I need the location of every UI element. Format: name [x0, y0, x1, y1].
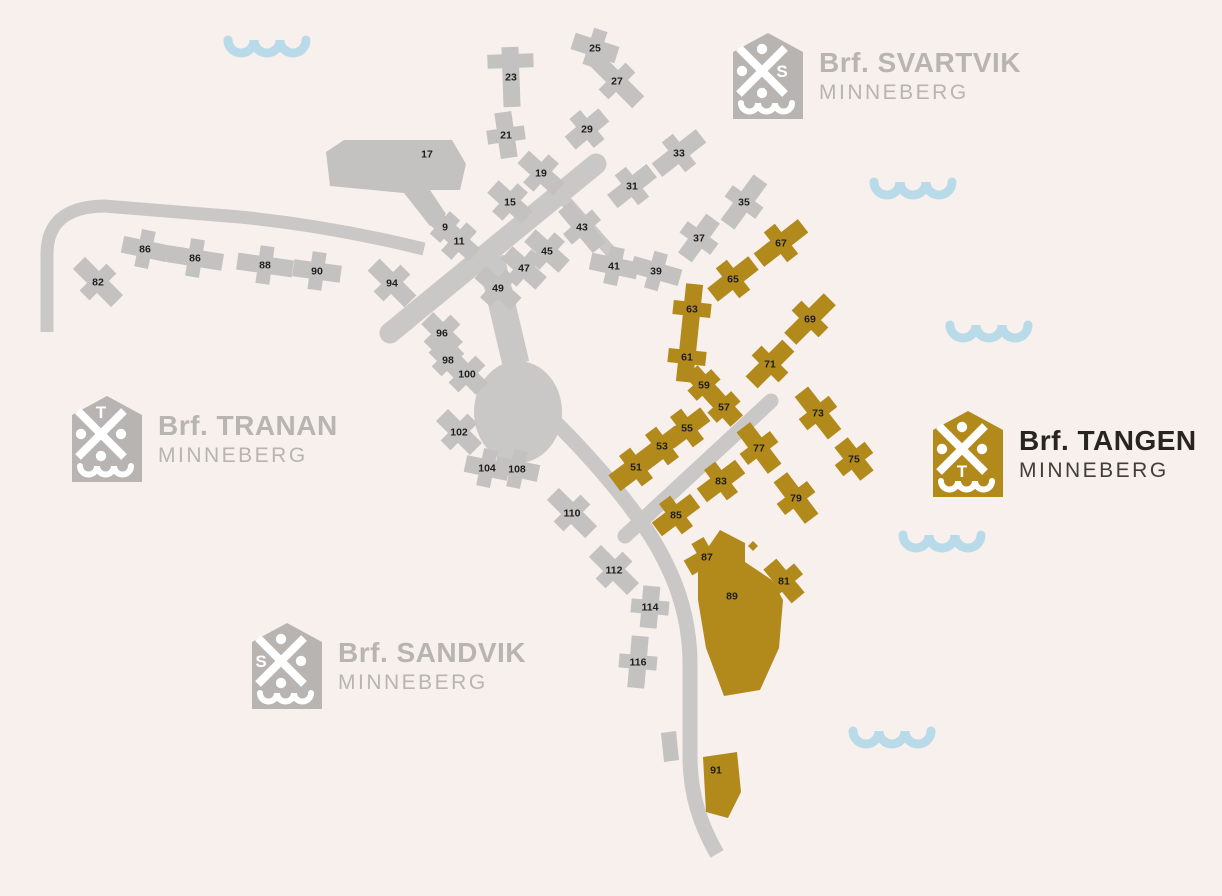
building-label-86: 86 — [139, 244, 151, 256]
building-label-47: 47 — [518, 263, 530, 275]
shield-dot — [757, 88, 767, 98]
shield-letter: T — [957, 462, 968, 481]
building-label-11: 11 — [453, 236, 464, 248]
building-label-77: 77 — [753, 443, 765, 455]
building-label-35: 35 — [738, 197, 750, 209]
building-label-27: 27 — [611, 76, 623, 88]
tranan-logo-text: Brf. TRANAN MINNEBERG — [158, 411, 338, 466]
water-wave-icon-3 — [950, 325, 1028, 338]
building-label-63: 63 — [686, 304, 698, 316]
water-wave-icon-1 — [228, 40, 306, 53]
svartvik-shield-icon: S — [733, 33, 803, 119]
building-label-104: 104 — [478, 463, 496, 475]
tranan-title: Brf. TRANAN — [158, 411, 338, 440]
building-label-33: 33 — [673, 148, 685, 160]
building-label-108: 108 — [508, 464, 526, 476]
sandvik-subtitle: MINNEBERG — [338, 671, 526, 694]
shield-dot — [977, 444, 987, 454]
building-label-17: 17 — [421, 149, 433, 161]
building-label-31: 31 — [626, 181, 638, 193]
brf-svartvik-logo[interactable]: S Brf. SVARTVIK MINNEBERG — [733, 33, 1021, 119]
building-label-19: 19 — [535, 168, 547, 180]
building-label-39: 39 — [650, 266, 662, 278]
brf-sandvik-logo[interactable]: S Brf. SANDVIK MINNEBERG — [252, 623, 526, 709]
building-label-9: 9 — [442, 222, 448, 234]
building-label-116: 116 — [630, 657, 647, 669]
building-label-87: 87 — [701, 552, 713, 564]
sandvik-shield-icon: S — [252, 623, 322, 709]
building-label-94: 94 — [386, 278, 398, 290]
building-label-25: 25 — [589, 43, 601, 55]
building-label-71: 71 — [764, 359, 776, 371]
tranan-subtitle: MINNEBERG — [158, 444, 338, 467]
shield-dot — [276, 678, 286, 688]
building-label-114: 114 — [642, 602, 659, 614]
shield-dot — [757, 44, 767, 54]
svartvik-title: Brf. SVARTVIK — [819, 48, 1021, 77]
shield-dot — [937, 444, 947, 454]
water-wave-icon-4 — [903, 535, 981, 548]
building-label-59: 59 — [698, 380, 710, 392]
building-label-81: 81 — [778, 576, 790, 588]
building-label-75: 75 — [848, 454, 860, 466]
shield-dot — [96, 451, 106, 461]
tangen-title: Brf. TANGEN — [1019, 426, 1197, 455]
building-91 — [703, 752, 741, 818]
building-annex — [661, 731, 679, 762]
building-label-37: 37 — [693, 233, 705, 245]
building-label-51: 51 — [630, 462, 642, 474]
building-label-41: 41 — [608, 261, 620, 273]
water-wave-icon-2 — [874, 182, 952, 195]
building-label-67: 67 — [775, 238, 787, 250]
building-label-91: 91 — [710, 765, 722, 777]
building-label-69: 69 — [804, 314, 816, 326]
shield-dot — [296, 656, 306, 666]
building-label-61: 61 — [681, 352, 693, 364]
shield-dot — [276, 634, 286, 644]
shield-dot — [737, 66, 747, 76]
svartvik-logo-text: Brf. SVARTVIK MINNEBERG — [819, 48, 1021, 103]
building-label-23: 23 — [505, 72, 517, 84]
building-annex — [748, 541, 758, 551]
water-wave-icon-5 — [853, 731, 931, 744]
svartvik-subtitle: MINNEBERG — [819, 81, 1021, 104]
building-label-55: 55 — [681, 423, 693, 435]
building-label-98: 98 — [442, 355, 454, 367]
tangen-subtitle: MINNEBERG — [1019, 459, 1197, 482]
brf-tangen-logo[interactable]: T Brf. TANGEN MINNEBERG — [933, 411, 1197, 497]
sandvik-logo-text: Brf. SANDVIK MINNEBERG — [338, 638, 526, 693]
building-label-89: 89 — [726, 591, 738, 603]
building-label-102: 102 — [450, 427, 468, 439]
building-label-100: 100 — [458, 369, 476, 381]
building-label-90: 90 — [311, 266, 323, 278]
building-label-110: 110 — [564, 508, 581, 520]
building-label-96: 96 — [436, 328, 448, 340]
shield-dot — [957, 422, 967, 432]
sandvik-title: Brf. SANDVIK — [338, 638, 526, 667]
building-label-57: 57 — [718, 402, 730, 414]
building-label-82: 82 — [92, 277, 104, 289]
road-culdesac-blob — [474, 361, 562, 463]
building-label-85: 85 — [670, 510, 682, 522]
building-label-15: 15 — [504, 197, 516, 209]
building-label-65: 65 — [727, 274, 739, 286]
building-label-29: 29 — [581, 124, 593, 136]
shield-letter: S — [255, 652, 266, 671]
tranan-shield-icon: T — [72, 396, 142, 482]
building-label-43: 43 — [576, 222, 588, 234]
tangen-logo-text: Brf. TANGEN MINNEBERG — [1019, 426, 1197, 481]
shield-dot — [116, 429, 126, 439]
brf-tranan-logo[interactable]: T Brf. TRANAN MINNEBERG — [72, 396, 338, 482]
building-17 — [326, 140, 466, 226]
building-label-88: 88 — [259, 260, 271, 272]
building-label-73: 73 — [812, 408, 824, 420]
tangen-shield-icon: T — [933, 411, 1003, 497]
building-label-112: 112 — [606, 565, 623, 577]
shield-dot — [76, 429, 86, 439]
building-label-86: 86 — [189, 253, 201, 265]
building-label-49: 49 — [492, 283, 504, 295]
shield-letter: T — [96, 403, 107, 422]
building-label-79: 79 — [790, 493, 802, 505]
building-label-53: 53 — [656, 441, 668, 453]
minneberg-area-map: 2527232129331719313515911433745474139498… — [0, 0, 1222, 896]
building-label-45: 45 — [541, 246, 553, 258]
shield-letter: S — [776, 62, 787, 81]
road-south — [518, 388, 717, 854]
building-label-21: 21 — [500, 130, 512, 142]
building-label-83: 83 — [715, 476, 727, 488]
